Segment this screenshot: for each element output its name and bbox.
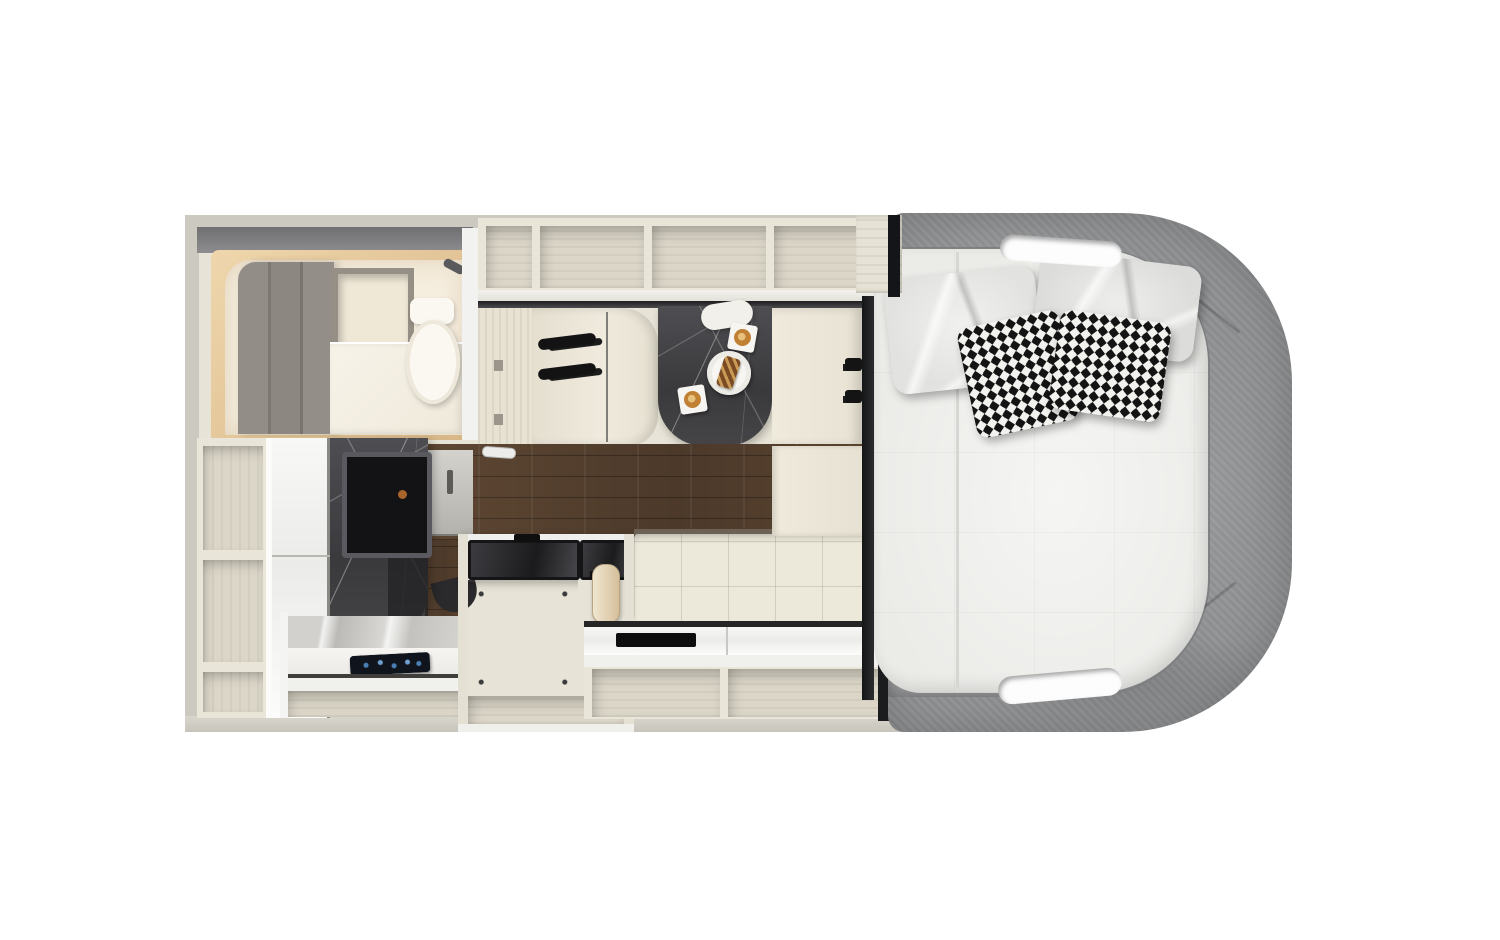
shower-rail-band [286, 616, 462, 650]
ledge-front [584, 655, 896, 667]
kettle [592, 564, 620, 624]
left-counter-underspace [286, 691, 462, 717]
sofa-chaise [772, 446, 866, 536]
toilet-bowl [406, 320, 460, 404]
ledge-vent-slot [616, 633, 696, 647]
bathroom-mirror-panels [238, 262, 334, 434]
galley-wire-handle [482, 446, 517, 459]
cappuccino-cup-1 [734, 329, 751, 346]
refrigerator [468, 580, 578, 696]
dinette-seat-divider [606, 312, 608, 442]
sofa [634, 534, 880, 632]
lid-handle-1 [514, 534, 540, 542]
grab-handle-right-1 [845, 358, 862, 371]
bottom-cubby-1 [592, 669, 720, 717]
tv-panel [342, 452, 432, 558]
grab-handle-right-2 [845, 390, 862, 403]
pillow-houndstooth-right [1048, 309, 1173, 424]
bed-corner-seam [888, 215, 900, 297]
overhead-cabinet-2 [540, 226, 644, 288]
cappuccino-cup-2 [684, 391, 701, 408]
tall-shelf-1 [203, 446, 263, 550]
left-counter-front [286, 678, 462, 691]
left-counter-sidewall [280, 612, 288, 718]
bathroom-niche [332, 268, 414, 350]
ledge-seam [726, 627, 728, 655]
rv-floorplan [0, 0, 1500, 940]
dinette-wall [478, 308, 532, 444]
tall-shelf-2 [203, 560, 263, 662]
tall-shelf-3 [203, 672, 263, 712]
kitchen-block-left-wall [458, 534, 468, 730]
tv-indicator [398, 490, 407, 499]
wall-mount-1 [494, 360, 503, 371]
control-tablet [350, 652, 431, 676]
bed-left-seam [862, 296, 874, 700]
overhead-cabinet-3 [652, 226, 766, 288]
galley-cabinet-handle [447, 470, 453, 494]
dinette-seat-right [772, 308, 864, 446]
kitchen-bottom-edge [458, 724, 634, 732]
cooktop-lid-1 [468, 540, 580, 580]
wardrobe-seam [272, 555, 330, 557]
wall-mount-2 [494, 414, 503, 425]
overhead-cabinet-1 [486, 226, 532, 288]
